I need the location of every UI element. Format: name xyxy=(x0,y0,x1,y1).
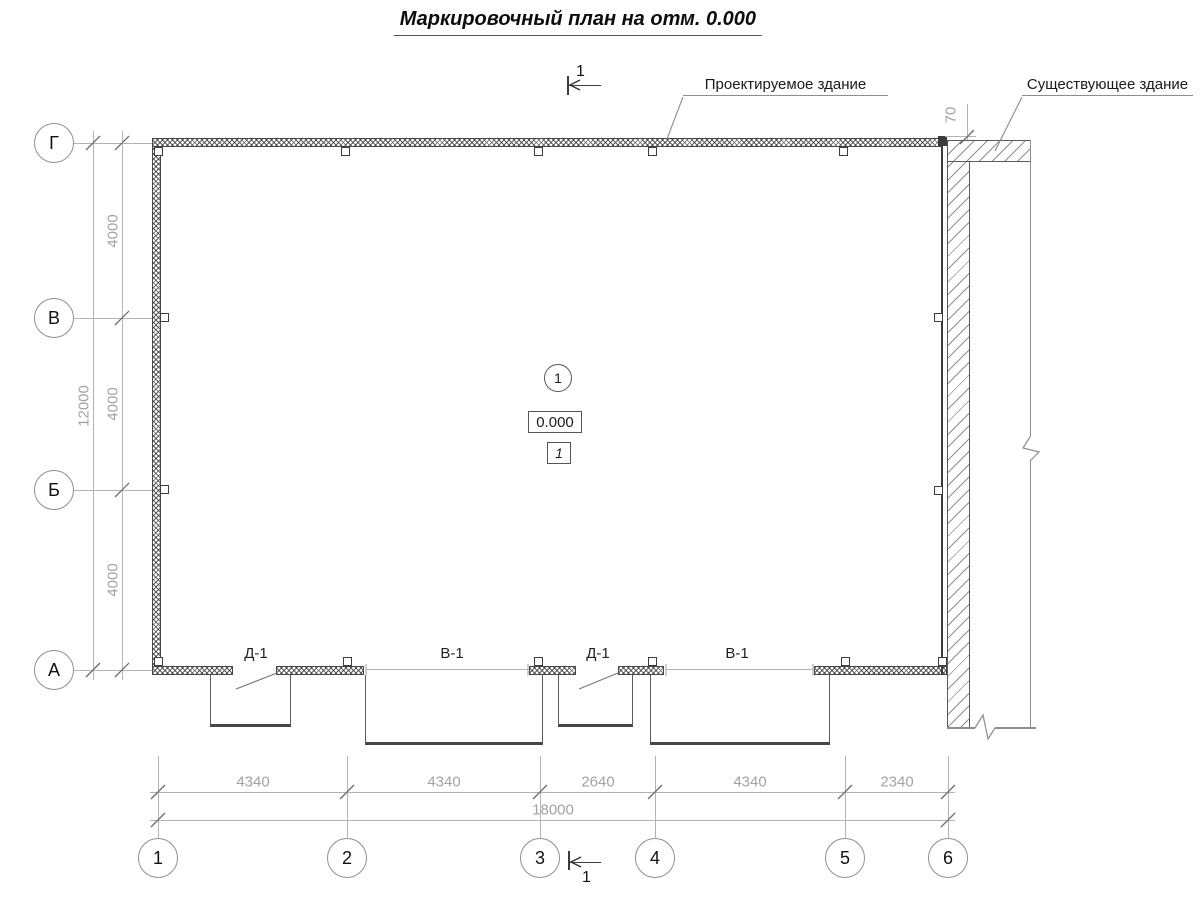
axis-number: 1 xyxy=(153,848,163,869)
dim-line-bottom-total xyxy=(150,820,955,821)
wall-bottom-seg4 xyxy=(618,666,664,675)
leader-projected xyxy=(667,97,683,139)
dim-left-1: 4000 xyxy=(105,214,122,247)
column-mark xyxy=(648,147,657,156)
dim-line-left-segments xyxy=(122,131,123,680)
axis-line-g xyxy=(74,143,152,144)
column-mark xyxy=(841,657,850,666)
axis-line-b xyxy=(74,490,152,491)
existing-edge-bottom-right xyxy=(995,727,1036,729)
wall-top xyxy=(152,138,943,147)
section-cut-line-bottom xyxy=(568,851,570,870)
axis-ext-5 xyxy=(845,756,846,838)
break-symbol-bottom xyxy=(975,715,995,739)
column-mark xyxy=(154,147,163,156)
axis-ext-4 xyxy=(655,756,656,838)
apron-gate-1 xyxy=(365,675,543,745)
existing-edge-bottom-left xyxy=(947,727,975,729)
column-mark xyxy=(934,486,943,495)
axis-circle-2: 2 xyxy=(327,838,367,878)
callout-projected-building: Проектируемое здание xyxy=(683,76,888,96)
porch-door-1 xyxy=(210,675,291,727)
axis-letter: Г xyxy=(49,133,59,154)
dim-bottom-2: 4340 xyxy=(427,774,460,791)
dim-line-bottom-segments xyxy=(150,792,955,793)
dim-ext-gap xyxy=(945,136,976,137)
axis-circle-1: 1 xyxy=(138,838,178,878)
opening-label-d1b: Д-1 xyxy=(586,645,610,662)
drawing-title: Маркировочный план на отм. 0.000 xyxy=(394,8,762,36)
column-mark xyxy=(341,147,350,156)
level-marker-box: 0.000 xyxy=(528,411,582,433)
axis-letter: Б xyxy=(48,480,60,501)
wall-bottom-seg5 xyxy=(814,666,947,675)
linework-overlay xyxy=(0,0,1200,900)
axis-circle-a: А xyxy=(34,650,74,690)
room-marker-number: 1 xyxy=(555,445,563,461)
column-mark xyxy=(160,485,169,494)
column-mark xyxy=(160,313,169,322)
gate-line-1 xyxy=(366,669,528,670)
wall-bottom-seg2 xyxy=(276,666,364,675)
existing-wall-top xyxy=(947,140,1031,162)
axis-circle-b: Б xyxy=(34,470,74,510)
axis-circle-v: В xyxy=(34,298,74,338)
axis-line-v xyxy=(74,318,152,319)
dim-bottom-1: 4340 xyxy=(236,774,269,791)
node-marker-number: 1 xyxy=(554,370,562,386)
section-cut-tail-bottom xyxy=(570,862,601,863)
axis-ext-3 xyxy=(540,756,541,838)
column-mark xyxy=(938,657,947,666)
gate-line-2 xyxy=(666,669,813,670)
dim-bottom-3: 2640 xyxy=(581,774,614,791)
axis-number: 3 xyxy=(535,848,545,869)
node-marker-circle: 1 xyxy=(544,364,572,392)
opening-label-v1b: В-1 xyxy=(725,645,748,662)
column-mark-corner-filled xyxy=(938,136,947,146)
axis-ext-1 xyxy=(158,756,159,838)
dim-left-total: 12000 xyxy=(76,385,93,427)
column-mark xyxy=(839,147,848,156)
break-symbol-right xyxy=(1023,437,1039,461)
existing-wall-vertical xyxy=(947,140,970,728)
axis-number: 4 xyxy=(650,848,660,869)
section-cut-tail-top xyxy=(569,85,601,86)
axis-circle-5: 5 xyxy=(825,838,865,878)
drawing-canvas: Маркировочный план на отм. 0.000 Проекти… xyxy=(0,0,1200,900)
existing-edge-right-upper xyxy=(1030,140,1031,437)
axis-circle-4: 4 xyxy=(635,838,675,878)
column-mark xyxy=(154,657,163,666)
dim-line-left-total xyxy=(93,131,94,680)
axis-number: 5 xyxy=(840,848,850,869)
porch-door-2 xyxy=(558,675,633,727)
dim-bottom-4: 4340 xyxy=(733,774,766,791)
axis-circle-6: 6 xyxy=(928,838,968,878)
axis-circle-g: Г xyxy=(34,123,74,163)
dim-gap-70: 70 xyxy=(943,107,960,124)
section-number-bottom: 1 xyxy=(582,869,591,887)
column-mark xyxy=(534,657,543,666)
column-mark xyxy=(934,313,943,322)
wall-bottom-seg3 xyxy=(529,666,576,675)
axis-number: 6 xyxy=(943,848,953,869)
opening-label-d1a: Д-1 xyxy=(244,645,268,662)
dim-line-gap xyxy=(967,104,968,140)
column-mark xyxy=(534,147,543,156)
wall-right-line xyxy=(941,138,943,675)
dim-left-2: 4000 xyxy=(105,387,122,420)
room-marker-box: 1 xyxy=(547,442,571,464)
axis-line-a xyxy=(74,670,152,671)
existing-edge-right-lower xyxy=(1030,461,1031,727)
axis-circle-3: 3 xyxy=(520,838,560,878)
opening-label-v1a: В-1 xyxy=(440,645,463,662)
wall-bottom-seg1 xyxy=(152,666,233,675)
axis-number: 2 xyxy=(342,848,352,869)
column-mark xyxy=(343,657,352,666)
axis-ext-2 xyxy=(347,756,348,838)
column-mark xyxy=(648,657,657,666)
level-marker-value: 0.000 xyxy=(536,414,574,431)
dim-bottom-5: 2340 xyxy=(880,774,913,791)
dim-left-3: 4000 xyxy=(105,563,122,596)
axis-letter: А xyxy=(48,660,60,681)
dim-bottom-total: 18000 xyxy=(532,802,574,819)
section-number-top: 1 xyxy=(576,63,585,81)
apron-gate-2 xyxy=(650,675,830,745)
axis-letter: В xyxy=(48,308,60,329)
wall-left xyxy=(152,138,161,675)
axis-ext-6 xyxy=(948,756,949,838)
callout-existing-building: Существующее здание xyxy=(1022,76,1193,96)
